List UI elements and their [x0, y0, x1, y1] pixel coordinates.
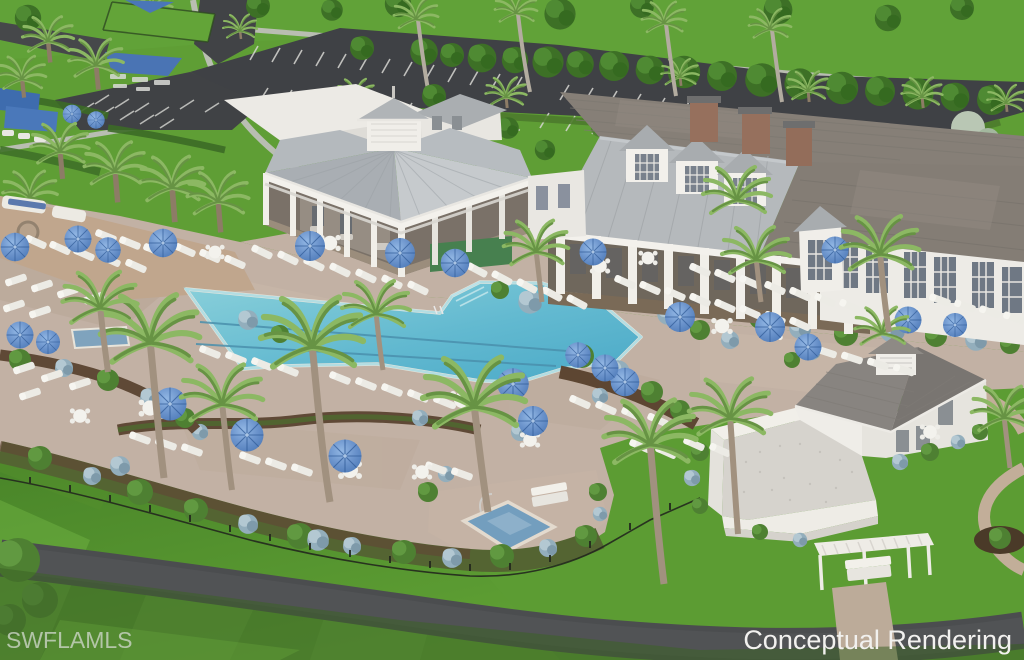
svg-text:SWFLAMLS: SWFLAMLS: [6, 627, 133, 653]
svg-text:Conceptual Rendering: Conceptual Rendering: [743, 625, 1012, 655]
